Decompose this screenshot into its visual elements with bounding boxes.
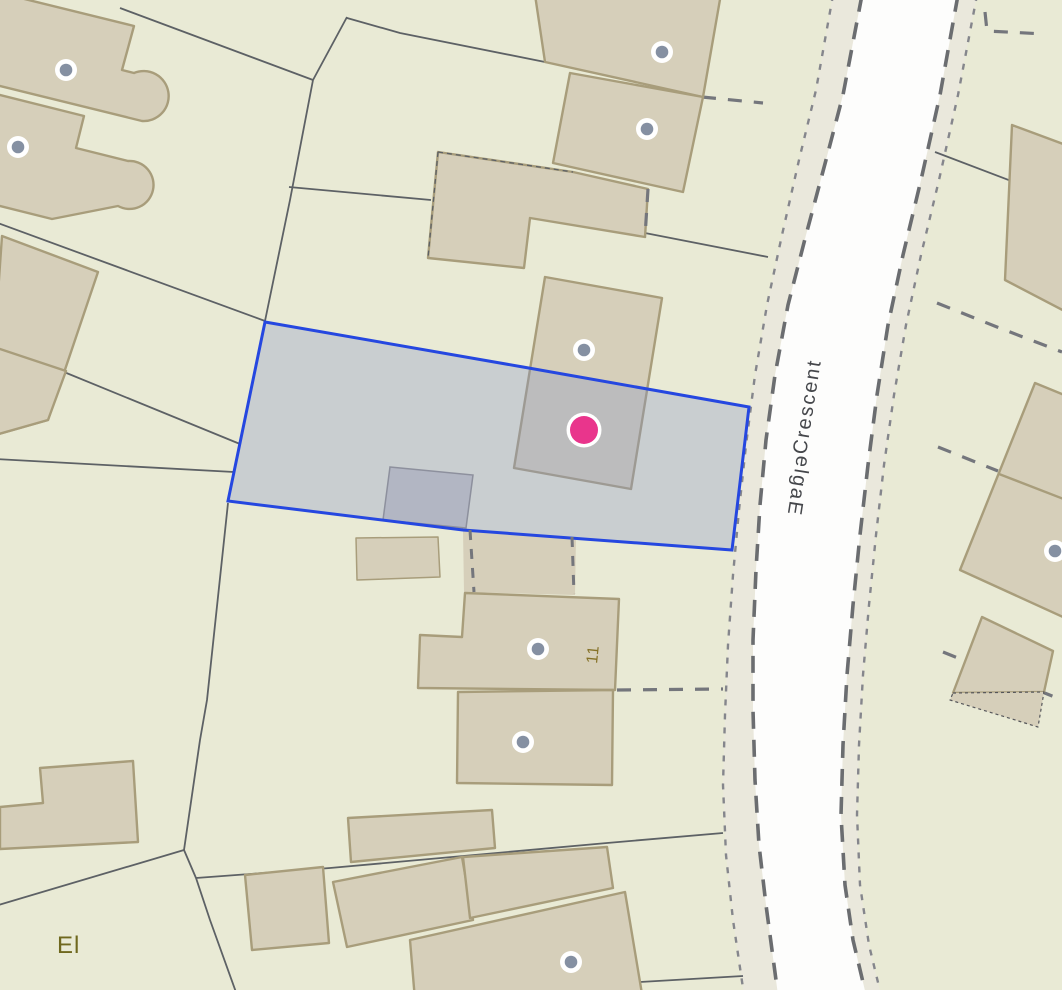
address-point-icon — [7, 136, 29, 158]
building-below-11 — [457, 690, 613, 785]
map-viewport[interactable]: Crescent elgaE 11 El — [0, 0, 1062, 990]
building-south-2 — [245, 867, 329, 950]
shed-small-tan — [356, 537, 440, 580]
map-canvas[interactable]: Crescent elgaE 11 El — [0, 0, 1062, 990]
address-point-icon — [651, 41, 673, 63]
address-point-icon — [636, 118, 658, 140]
substation-label: El — [57, 932, 80, 959]
selected-location-marker-icon[interactable] — [567, 413, 602, 448]
yard-strip — [463, 530, 576, 595]
address-point-icon — [560, 951, 582, 973]
address-point-icon — [55, 59, 77, 81]
address-point-icon — [573, 339, 595, 361]
house-number-label: 11 — [584, 644, 603, 664]
address-point-icon — [512, 731, 534, 753]
address-point-icon — [527, 638, 549, 660]
